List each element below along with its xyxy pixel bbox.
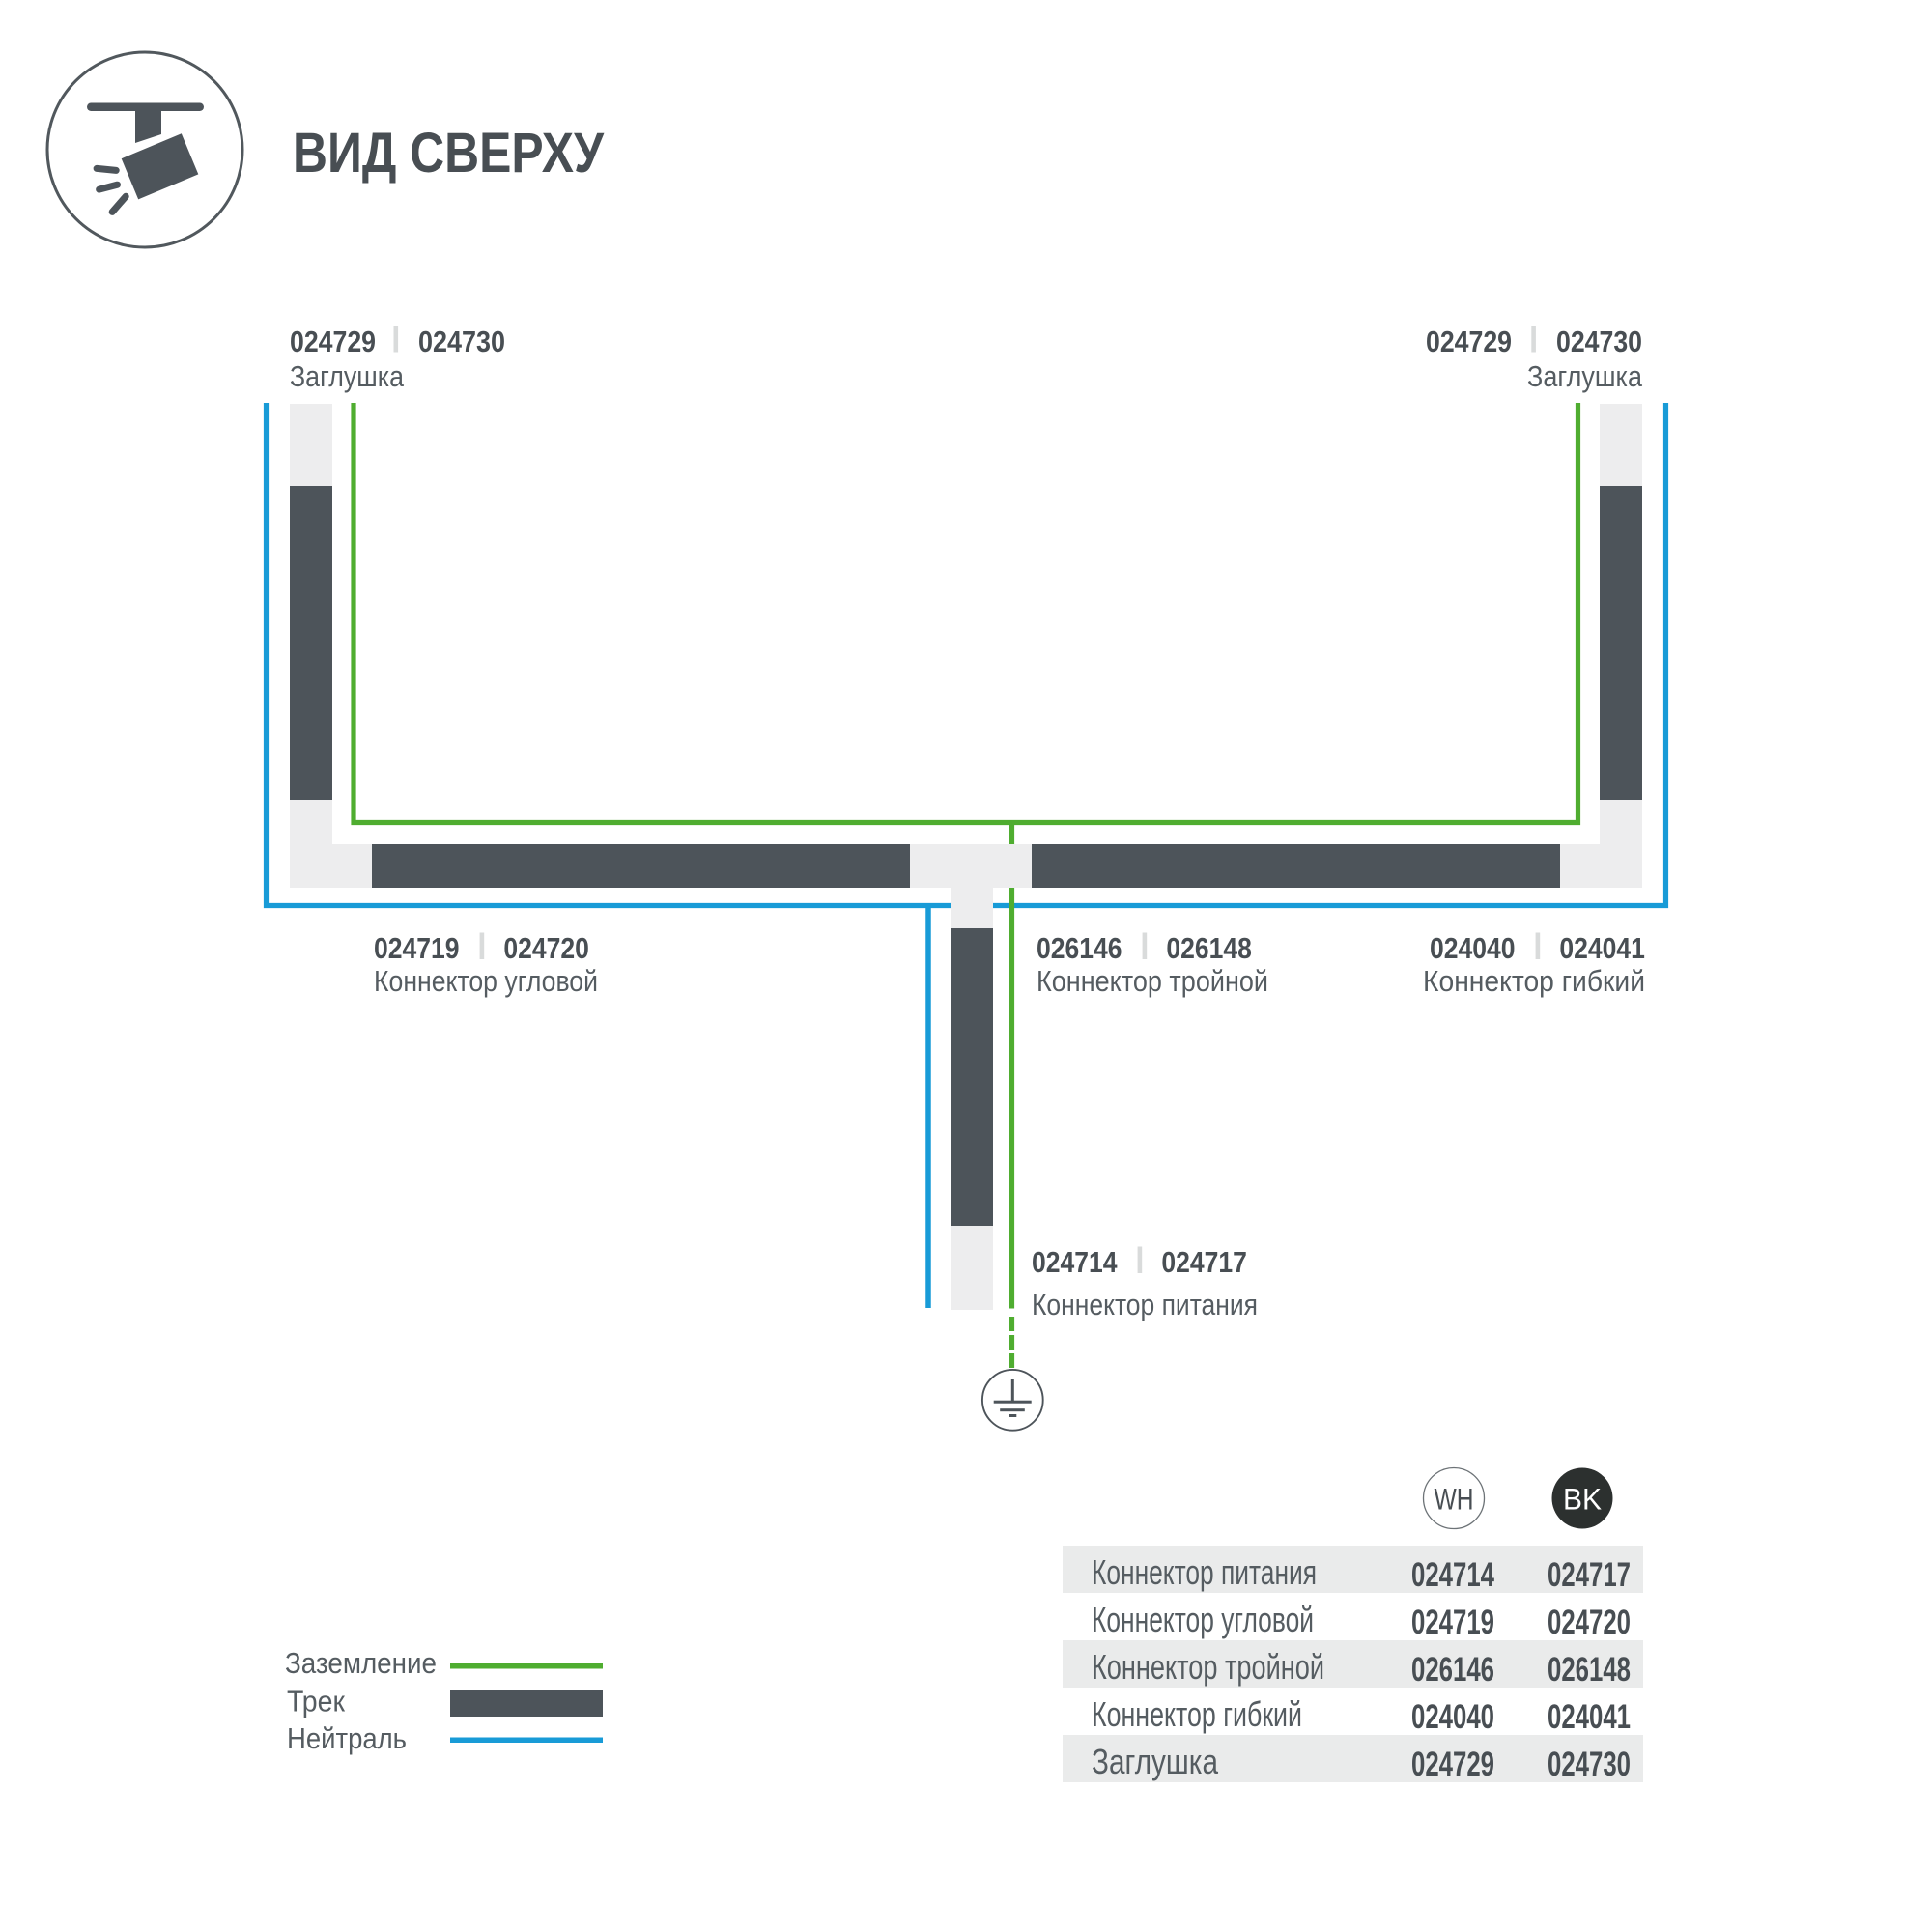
svg-text:024041: 024041 [1559, 931, 1645, 965]
svg-text:024040: 024040 [1411, 1698, 1494, 1736]
svg-text:024714: 024714 [1411, 1556, 1494, 1594]
svg-text:026146: 026146 [1037, 931, 1122, 965]
svg-text:024729: 024729 [1426, 325, 1512, 358]
svg-text:024730: 024730 [1556, 325, 1642, 358]
svg-text:Коннектор гибкий: Коннектор гибкий [1092, 1694, 1302, 1734]
svg-text:Заглушка: Заглушка [1527, 359, 1643, 393]
svg-text:024720: 024720 [503, 931, 589, 965]
svg-text:Заглушка: Заглушка [1092, 1742, 1219, 1781]
svg-text:026148: 026148 [1548, 1651, 1631, 1689]
svg-text:Коннектор гибкий: Коннектор гибкий [1423, 964, 1645, 998]
svg-text:026146: 026146 [1411, 1651, 1494, 1689]
svg-text:Коннектор тройной: Коннектор тройной [1037, 964, 1268, 998]
svg-text:024041: 024041 [1548, 1698, 1631, 1736]
svg-text:Заземление: Заземление [285, 1646, 437, 1680]
svg-text:WH: WH [1435, 1482, 1474, 1517]
svg-text:024729: 024729 [1411, 1746, 1494, 1783]
svg-text:Коннектор тройной: Коннектор тройной [1092, 1647, 1324, 1687]
svg-text:BK: BK [1563, 1482, 1602, 1517]
svg-text:Коннектор питания: Коннектор питания [1032, 1288, 1258, 1321]
svg-text:024719: 024719 [1411, 1604, 1494, 1641]
svg-text:024730: 024730 [1548, 1746, 1631, 1783]
svg-text:024719: 024719 [374, 931, 460, 965]
svg-text:024720: 024720 [1548, 1604, 1631, 1641]
svg-text:Коннектор угловой: Коннектор угловой [1092, 1600, 1314, 1639]
svg-text:024714: 024714 [1032, 1245, 1118, 1279]
svg-text:024717: 024717 [1548, 1556, 1631, 1594]
svg-text:024730: 024730 [418, 325, 505, 358]
svg-text:024729: 024729 [290, 325, 376, 358]
svg-text:Заглушка: Заглушка [290, 359, 405, 393]
svg-text:ВИД СВЕРХУ: ВИД СВЕРХУ [293, 122, 605, 185]
svg-text:024717: 024717 [1161, 1245, 1247, 1279]
svg-text:Трек: Трек [287, 1685, 345, 1719]
svg-text:026148: 026148 [1166, 931, 1252, 965]
svg-text:Коннектор угловой: Коннектор угловой [374, 964, 598, 998]
svg-text:Коннектор питания: Коннектор питания [1092, 1552, 1317, 1592]
svg-text:Нейтраль: Нейтраль [287, 1721, 407, 1755]
svg-text:024040: 024040 [1430, 931, 1516, 965]
